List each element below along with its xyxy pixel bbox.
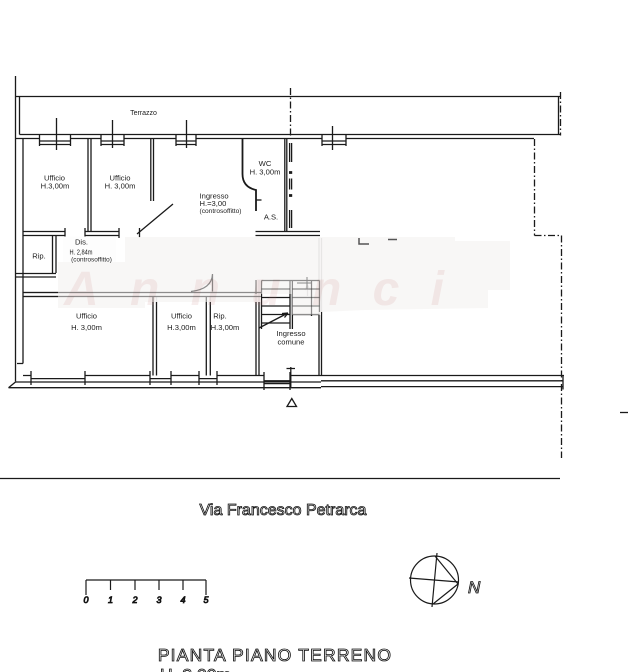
svg-text:H.=3,00: H.=3,00: [200, 199, 227, 208]
svg-text:0: 0: [83, 595, 88, 605]
svg-text:N: N: [468, 578, 481, 597]
svg-text:4: 4: [180, 595, 185, 605]
svg-text:Dis.: Dis.: [75, 238, 88, 247]
svg-text:Via Francesco Petrarca: Via Francesco Petrarca: [200, 502, 367, 519]
svg-text:H. 2,84m: H. 2,84m: [70, 248, 93, 257]
svg-text:1: 1: [108, 595, 113, 605]
svg-text:Ufficio: Ufficio: [171, 312, 192, 321]
svg-text:3: 3: [156, 595, 161, 605]
svg-text:Ufficio: Ufficio: [76, 312, 97, 321]
svg-text:H. 3,00m: H. 3,00m: [250, 168, 281, 177]
svg-text:5: 5: [203, 595, 209, 605]
svg-text:PIANTA PIANO TERRENO: PIANTA PIANO TERRENO: [158, 645, 392, 665]
svg-text:(controsoffitto): (controsoffitto): [71, 257, 112, 264]
svg-text:Rip.: Rip.: [32, 252, 46, 261]
svg-text:H.3,00m: H.3,00m: [167, 323, 196, 332]
svg-text:A.S.: A.S.: [264, 213, 278, 222]
svg-text:H. 3,00m: H. 3,00m: [71, 323, 102, 332]
svg-text:(controsoffitto): (controsoffitto): [200, 208, 242, 215]
svg-text:Rip.: Rip.: [213, 312, 227, 321]
svg-text:H.3,00m: H.3,00m: [211, 323, 240, 332]
svg-text:comune: comune: [277, 338, 304, 347]
svg-text:2: 2: [131, 595, 137, 605]
svg-text:H.3,00m: H.3,00m: [41, 182, 70, 191]
svg-text:Terrazzo: Terrazzo: [130, 110, 157, 117]
svg-text:H. 3,00m: H. 3,00m: [160, 665, 231, 672]
svg-text:H. 3,00m: H. 3,00m: [105, 182, 136, 191]
